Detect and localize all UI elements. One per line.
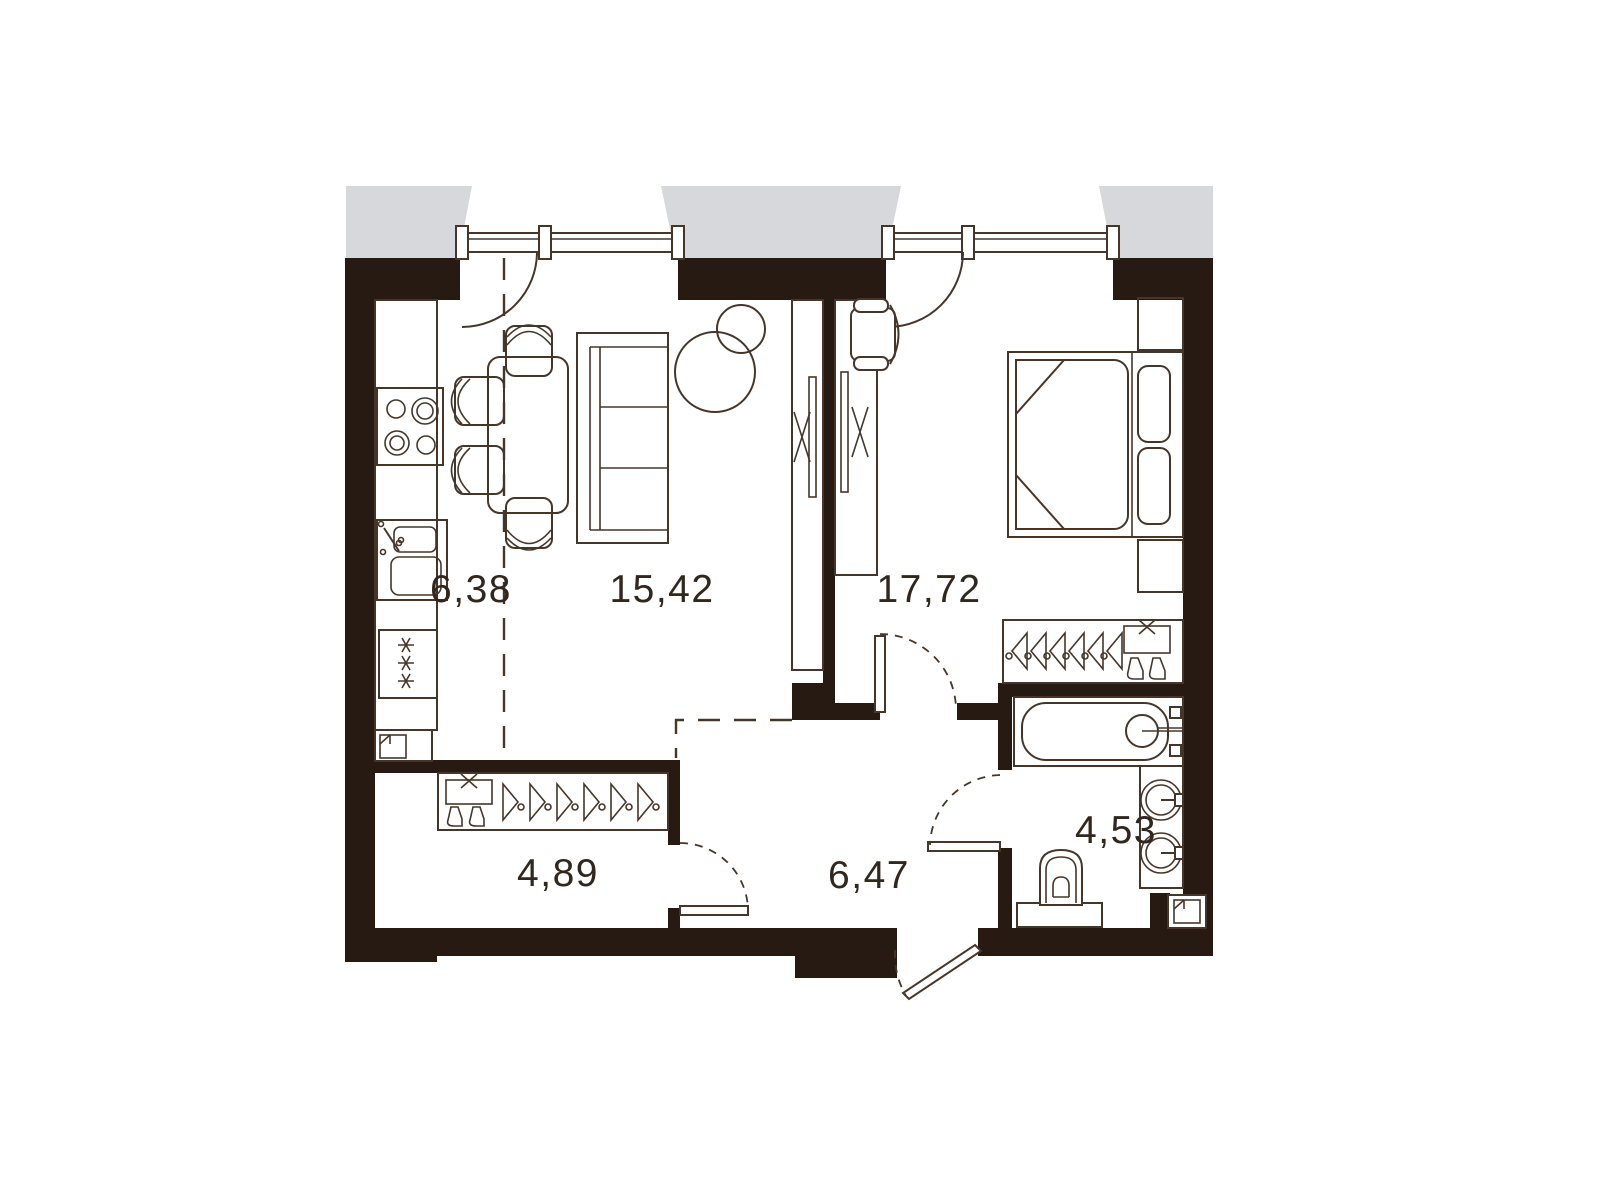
boots-icon — [1128, 658, 1165, 679]
door-swing — [880, 634, 956, 710]
dining-chair — [452, 446, 505, 494]
dining-chair — [452, 377, 505, 425]
armchair — [851, 299, 899, 370]
hallway-door — [680, 843, 748, 915]
sliding-wardrobe-living — [792, 300, 823, 670]
wall-bottom-right — [978, 928, 1213, 956]
nightstand — [1138, 540, 1183, 592]
hanger-icon — [503, 784, 659, 820]
area-label-corridor: 6,47 — [828, 854, 910, 897]
bathtub — [1014, 697, 1183, 766]
hallway — [438, 773, 668, 830]
wall-left — [345, 258, 375, 958]
balcony-slab — [661, 186, 901, 258]
window-living — [456, 226, 684, 259]
dining-table — [488, 357, 568, 513]
balcony-door-swing-living — [462, 252, 537, 327]
window-bedroom — [882, 226, 1119, 259]
wall-top-left — [345, 258, 460, 300]
balcony-door-swing-bedroom — [888, 252, 963, 327]
door-swing — [930, 775, 1000, 845]
bathroom-vent-shaft-icon — [1168, 895, 1206, 928]
corridor-zone-divider — [676, 720, 792, 758]
door-swing — [680, 843, 748, 911]
living-room — [452, 300, 824, 670]
kitchen — [375, 300, 447, 761]
bedroom-door — [875, 634, 956, 712]
floor-plan: 6,38 15,42 17,72 4,89 6,47 4,53 — [0, 0, 1600, 1200]
dining-chair — [506, 325, 552, 376]
door-leaf — [928, 842, 1000, 851]
wall-partition-foot — [792, 683, 835, 720]
area-label-kitchen: 6,38 — [430, 568, 512, 611]
snowflake-icon — [398, 638, 414, 688]
door-leaf — [680, 906, 748, 915]
blanket-fold — [1016, 475, 1064, 529]
hallway-hanger-wardrobe — [438, 773, 668, 830]
dining-chair — [506, 498, 552, 550]
door-leaf — [903, 945, 981, 999]
area-label-hallway: 4,89 — [517, 852, 599, 895]
sofa — [577, 333, 668, 543]
wall-bathroom-left-upper — [998, 683, 1012, 770]
kitchen-vent-shaft-icon — [375, 730, 432, 761]
area-label-bedroom: 17,72 — [876, 568, 981, 611]
blanket-fold — [1016, 360, 1064, 414]
nightstand — [1138, 298, 1183, 350]
wall-hallway-door-stub — [668, 908, 680, 930]
floor-lamp — [675, 305, 765, 412]
stove-icon — [377, 388, 443, 465]
pillow — [1138, 366, 1170, 442]
shirt-icon — [1124, 620, 1170, 653]
wall-bottom-step-entrance — [795, 928, 897, 978]
entrance-door — [895, 945, 981, 999]
wall-bottom-step-left — [345, 928, 437, 962]
bathroom-door — [928, 775, 1000, 851]
bedroom-hanger-wardrobe — [1003, 620, 1183, 683]
hanger-icon — [1006, 633, 1122, 669]
toilet — [1017, 850, 1102, 927]
balcony-slab — [346, 186, 472, 258]
wall-hallway-corridor — [668, 760, 680, 845]
wall-right — [1183, 258, 1213, 956]
shirt-icon — [446, 774, 492, 804]
fridge-icon — [379, 630, 437, 698]
door-leaf — [875, 636, 885, 712]
boots-icon — [448, 807, 484, 826]
wall-bathroom-left-lower — [998, 848, 1012, 930]
wall-partition-living-bedroom — [823, 290, 835, 683]
area-label-living: 15,42 — [609, 568, 714, 611]
bedroom — [835, 298, 1183, 683]
wall-bathroom-bedroom — [1012, 683, 1183, 697]
wall-top-middle — [678, 258, 886, 300]
double-bed — [1008, 352, 1183, 537]
kitchen-counter — [375, 300, 437, 730]
area-label-bathroom: 4,53 — [1075, 809, 1157, 852]
wall-bedroom-door-left — [835, 703, 880, 720]
pillow — [1138, 448, 1170, 524]
